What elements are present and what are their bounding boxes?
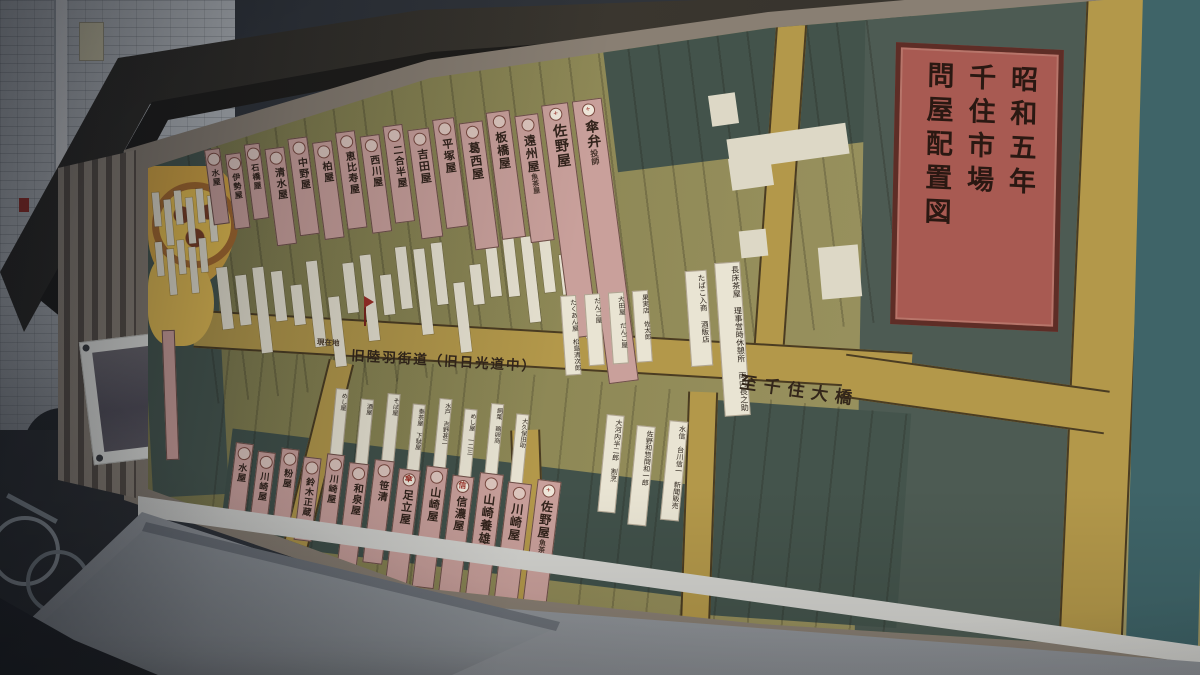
- small-label: 大田屋 だんご屋: [608, 292, 629, 365]
- shop-name: 二合半屋: [390, 144, 406, 189]
- shop-crest-mark: [484, 477, 498, 491]
- small-label: だんご屋: [584, 293, 605, 366]
- shop-crest-mark: 傘: [401, 473, 415, 487]
- shop-crest-mark: [351, 466, 365, 480]
- shop-name: 恵比寿屋: [342, 151, 358, 196]
- current-location-marker: [358, 296, 372, 326]
- small-label: 水戸 吉野甚二: [432, 398, 452, 475]
- shop-crest-mark: [291, 141, 306, 156]
- shop-name: 伊勢屋: [231, 173, 242, 201]
- screw: [96, 454, 104, 462]
- shop-crest-mark: [339, 135, 354, 150]
- shop-subtitle: 魚茶屋: [530, 173, 540, 195]
- shop-crest-mark: [227, 156, 242, 171]
- paper-strip: [163, 199, 174, 245]
- screw: [82, 344, 90, 352]
- white-lot-patch: [708, 92, 739, 126]
- shop-name: 傘弁: [582, 119, 600, 151]
- shop-name: 粉屋: [281, 468, 292, 489]
- shop-crest-mark: [246, 147, 261, 162]
- shop-crest-mark: [328, 457, 342, 471]
- white-lot-patch: [739, 229, 769, 259]
- shop-crest-mark: [304, 461, 318, 475]
- shop-name: 和泉屋: [348, 482, 362, 516]
- shop-crest-mark: +: [581, 103, 596, 118]
- title-plate-line: 昭和五年: [995, 64, 1042, 314]
- shop-name: 水屋: [211, 168, 221, 187]
- shop-name: 水屋: [236, 462, 247, 483]
- current-location-text: 現在地: [317, 336, 340, 348]
- shop-crest-mark: [412, 132, 427, 147]
- shop-crest-mark: [316, 145, 331, 160]
- shop-crest-mark: 信三: [455, 479, 469, 493]
- shop-crest-mark: [364, 138, 379, 153]
- shop-crest-mark: +: [549, 107, 564, 122]
- shop-crest-mark: [512, 486, 526, 500]
- red-sign: [19, 198, 29, 212]
- paper-strip-column: [155, 238, 211, 296]
- street-photo-of-map-signboard: 水屋 伊勢屋 石橋屋 清水屋 中野屋 柏屋: [0, 0, 1200, 675]
- utility-box: [79, 22, 104, 61]
- shop-crest-mark: [268, 151, 283, 166]
- shop-name: 足立屋: [398, 489, 413, 526]
- shop-name: 板橋屋: [494, 130, 511, 170]
- marker-flag: [364, 296, 374, 308]
- shop-crest-mark: [437, 122, 452, 137]
- small-label: そば屋: [380, 393, 400, 470]
- title-plate-text: 昭和五年千住市場問屋配置図: [912, 60, 1043, 314]
- shop-name: 川崎屋: [326, 474, 339, 505]
- shop-name: 川崎屋: [507, 502, 524, 542]
- paper-strip: [166, 249, 177, 295]
- title-plate: 昭和五年千住市場問屋配置図: [890, 42, 1064, 332]
- paper-strip-column: [152, 187, 218, 246]
- small-label: 大河内半二郎 割烹: [597, 414, 624, 513]
- shop-name: 吉田屋: [415, 148, 431, 185]
- shop-crest-mark: [492, 114, 507, 129]
- shop-crest-mark: [465, 125, 480, 140]
- shop-name: 山崎屋: [425, 486, 440, 523]
- paper-strip: [196, 188, 206, 222]
- paper-strip: [174, 190, 184, 224]
- small-label: 果実店 佐太郎: [632, 290, 653, 363]
- shop-name: 葛西屋: [467, 141, 484, 181]
- shop-crest-mark: [429, 470, 443, 484]
- shop-name: 鈴木正蔵: [301, 477, 315, 518]
- shop-crest-mark: [259, 455, 273, 469]
- shop-name: 信濃屋: [451, 495, 466, 532]
- shop-crest-mark: [236, 446, 250, 460]
- shop-name: 中野屋: [295, 157, 309, 191]
- paper-strip: [177, 240, 187, 274]
- shop-crest-mark: [520, 118, 535, 133]
- shop-name: 平塚屋: [440, 138, 456, 175]
- shop-name: 佐野屋: [550, 123, 570, 169]
- shop-name: 石橋屋: [250, 163, 261, 191]
- small-label: 飼葉 鶏卵商: [484, 403, 504, 480]
- paper-strip: [188, 247, 199, 293]
- shop-name: 佐野屋: [536, 500, 553, 540]
- paper-strip: [185, 197, 196, 243]
- shop-name: 清水屋: [272, 167, 286, 201]
- shop-name: 遠州屋: [523, 134, 540, 174]
- shop-crest-mark: [376, 463, 390, 477]
- shop-name: 川崎屋: [256, 471, 269, 502]
- shop-crest-mark: +: [541, 484, 555, 498]
- mid-right-label-row: たくあん屋 松島清次郎だんご屋大田屋 だんご屋果実店 佐太郎たばこ入商 酒販店長…: [560, 283, 751, 427]
- title-plate-line: 問屋配置図: [912, 60, 959, 310]
- shop-subtitle: 投師: [589, 149, 599, 166]
- white-lot-patch: [728, 153, 774, 191]
- shop-name: 柏屋: [320, 161, 333, 184]
- white-lot-patch: [818, 244, 862, 299]
- shop-name: 笹清: [375, 480, 388, 503]
- shop-crest-mark: [206, 152, 221, 167]
- shop-name: 山崎養雄: [477, 493, 495, 546]
- shop-name: 西川屋: [367, 154, 381, 188]
- small-label: 佐野和惣問和一郎: [627, 425, 655, 526]
- title-plate-line: 千住市場: [953, 62, 1000, 312]
- shop-crest-mark: [386, 128, 401, 143]
- shop-crest-mark: [282, 452, 296, 466]
